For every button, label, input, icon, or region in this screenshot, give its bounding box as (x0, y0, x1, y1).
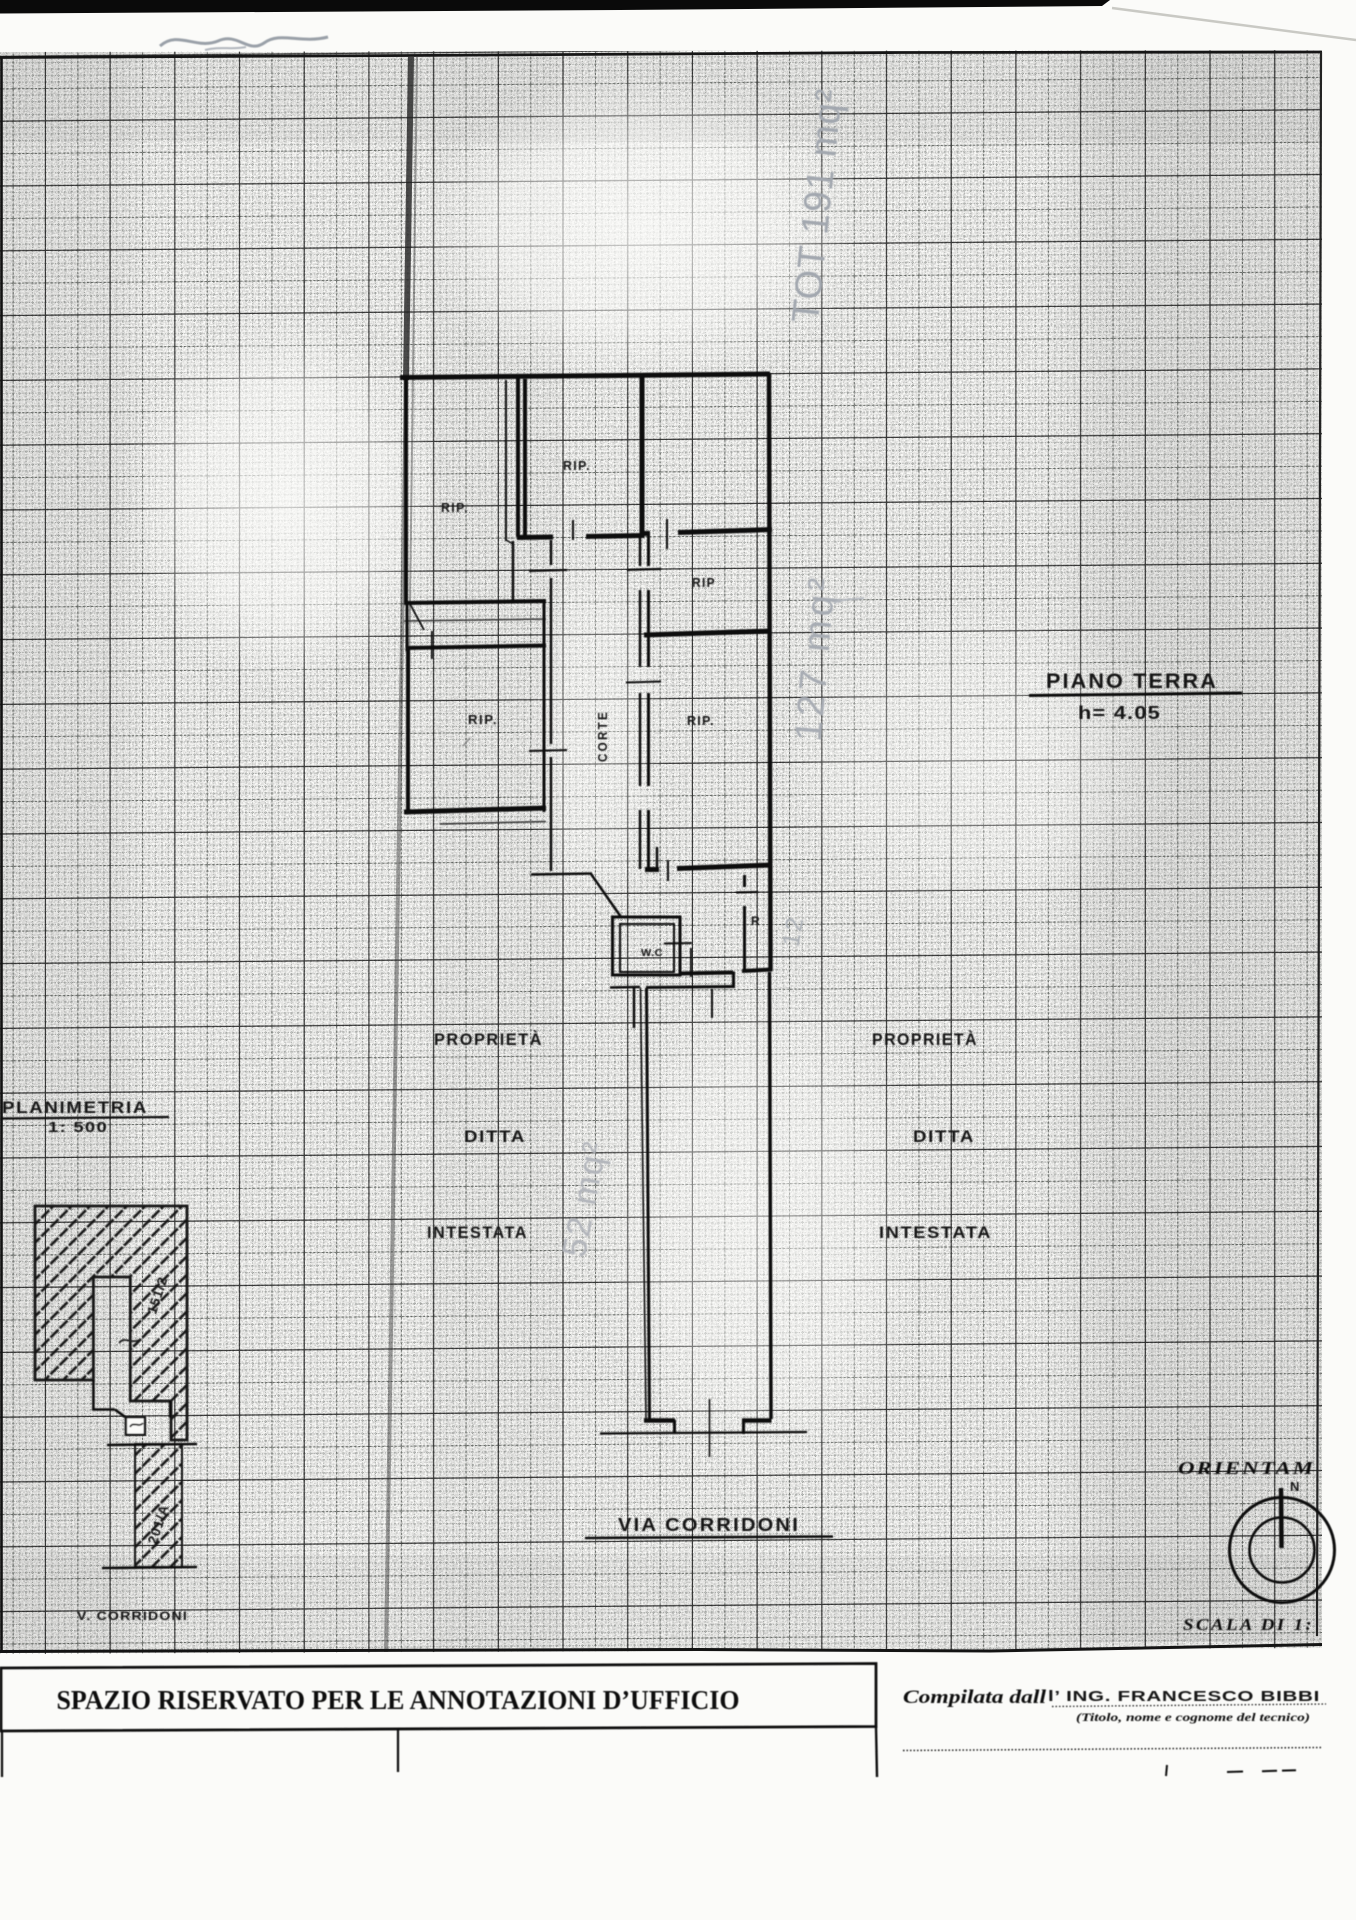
svg-text:1: 500: 1: 500 (48, 1120, 108, 1136)
svg-text:PIANO TERRA: PIANO TERRA (1046, 670, 1218, 693)
svg-text:h= 4.05: h= 4.05 (1078, 703, 1161, 723)
svg-text:RIP: RIP (692, 575, 716, 590)
svg-text:l’ ING. FRANCESCO BIBBI: l’ ING. FRANCESCO BIBBI (1048, 1688, 1320, 1705)
svg-text:DITTA: DITTA (464, 1128, 526, 1146)
svg-text:VIA CORRIDONI: VIA CORRIDONI (618, 1515, 800, 1535)
svg-text:RIP.: RIP. (563, 458, 591, 473)
svg-text:RIP.: RIP. (468, 712, 498, 727)
svg-text:PROPRIETÀ: PROPRIETÀ (434, 1030, 543, 1049)
svg-text:RIP.: RIP. (441, 500, 469, 515)
svg-text:Compilata dall: Compilata dall (903, 1688, 1047, 1708)
svg-text:V. CORRIDONI: V. CORRIDONI (77, 1611, 188, 1623)
svg-text:SCALA DI 1:: SCALA DI 1: (1183, 1615, 1314, 1634)
svg-text:W.C: W.C (641, 947, 663, 959)
svg-text:PLANIMETRIA: PLANIMETRIA (2, 1099, 148, 1117)
svg-text:R: R (751, 914, 760, 928)
svg-text:INTESTATA: INTESTATA (879, 1224, 992, 1242)
svg-text:PROPRIETÀ: PROPRIETÀ (872, 1030, 978, 1049)
svg-text:N: N (1290, 1479, 1299, 1494)
svg-text:RIP.: RIP. (687, 713, 715, 728)
svg-text:SPAZIO RISERVATO PER LE AN: SPAZIO RISERVATO PER LE ANNOTAZIONI D’UF… (57, 1685, 740, 1715)
svg-text:INTESTATA: INTESTATA (427, 1224, 528, 1242)
svg-text:ORIENTAM: ORIENTAM (1178, 1458, 1315, 1478)
svg-text:12: 12 (778, 914, 810, 949)
svg-text:(Titolo, nome e cognome del te: (Titolo, nome e cognome del tecnico) (1076, 1712, 1310, 1724)
svg-text:CORTE: CORTE (595, 710, 610, 762)
svg-text:DITTA: DITTA (913, 1128, 975, 1146)
